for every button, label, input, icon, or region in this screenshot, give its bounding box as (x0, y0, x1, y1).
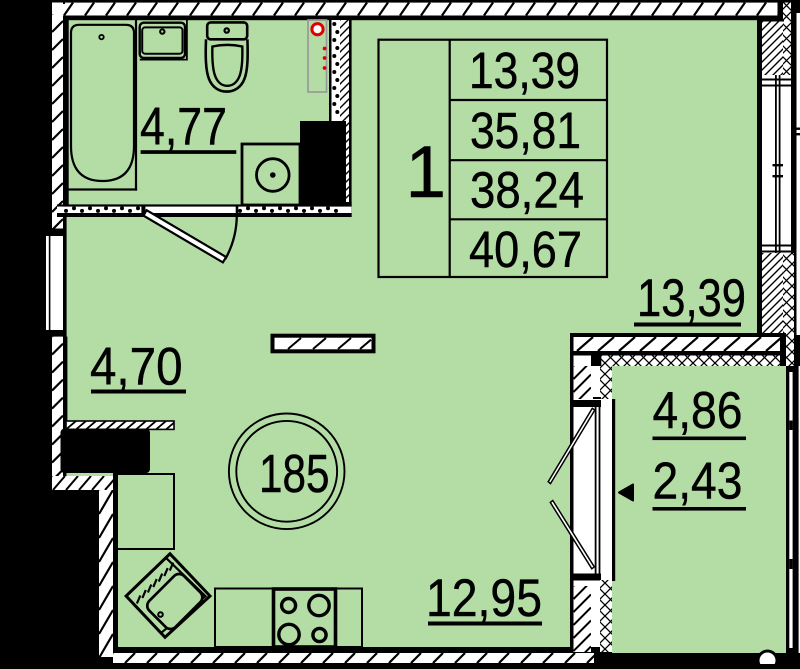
svg-text:13,39: 13,39 (469, 42, 580, 99)
svg-text:2,43: 2,43 (653, 453, 743, 511)
svg-text:4,77: 4,77 (140, 98, 227, 157)
svg-text:4,70: 4,70 (90, 338, 183, 397)
svg-text:1: 1 (406, 132, 447, 213)
svg-text:4,86: 4,86 (653, 382, 743, 440)
svg-text:38,24: 38,24 (470, 162, 584, 219)
svg-text:13,39: 13,39 (637, 269, 746, 328)
svg-text:185: 185 (259, 444, 330, 504)
svg-text:12,95: 12,95 (426, 569, 542, 628)
svg-text:35,81: 35,81 (470, 102, 581, 159)
svg-text:40,67: 40,67 (469, 221, 582, 278)
